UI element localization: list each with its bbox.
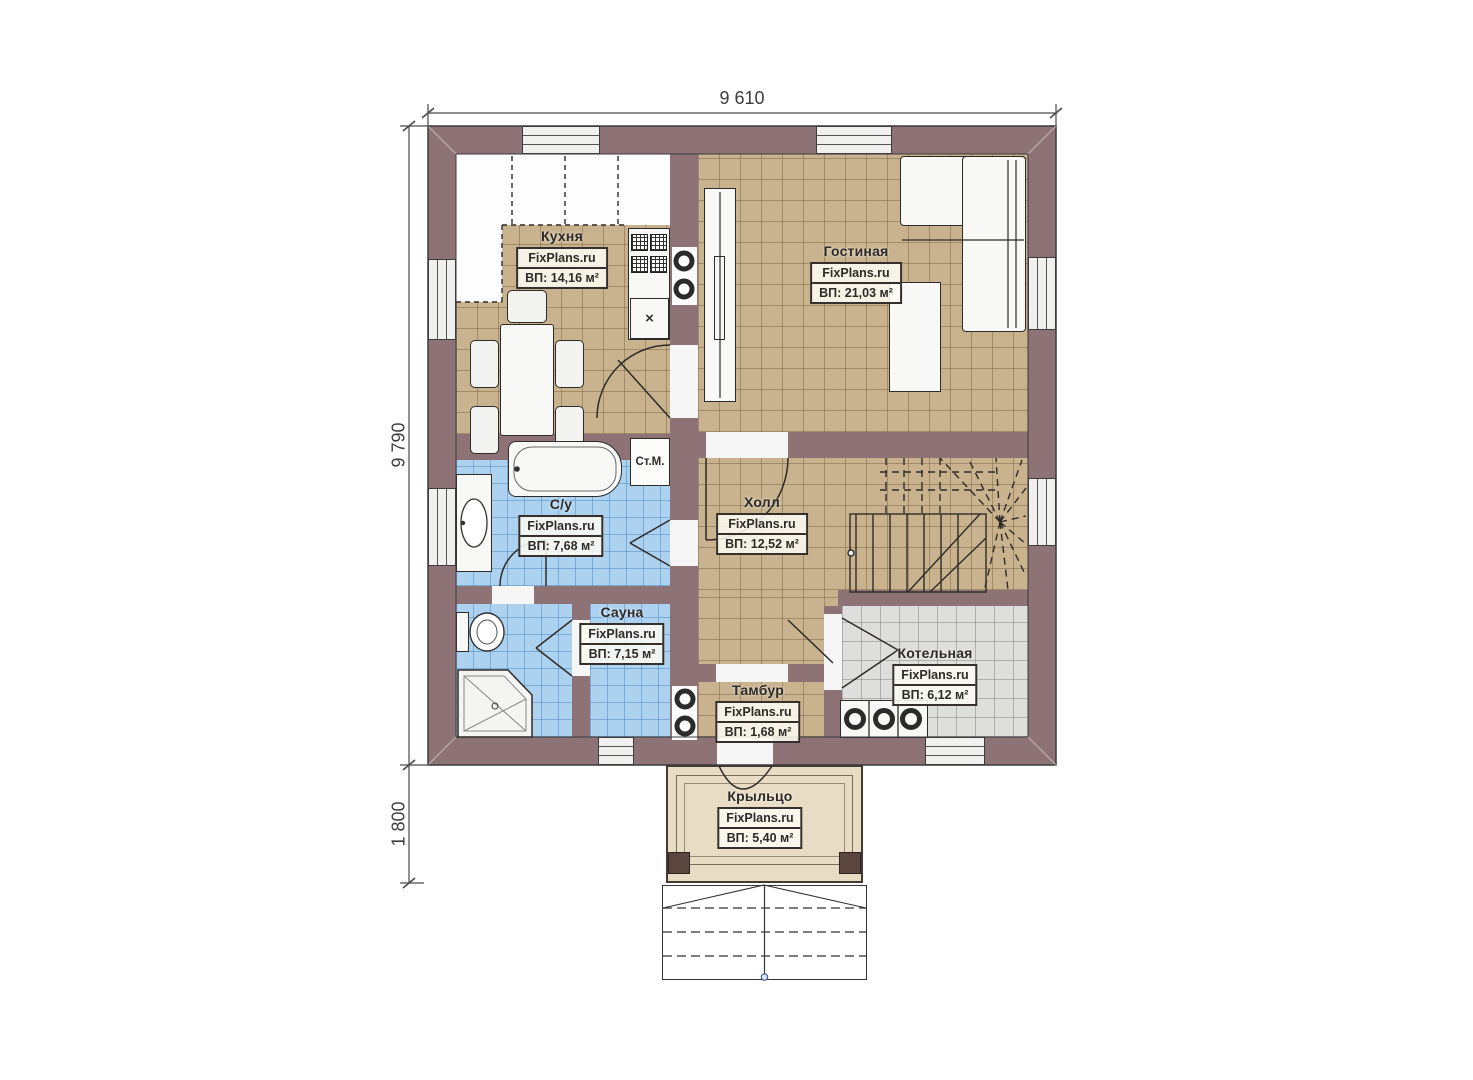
site-label: FixPlans.ru [520,517,601,535]
site-label: FixPlans.ru [581,625,662,643]
room-name: Кухня [516,228,608,244]
wall-bathroom-sauna [456,586,670,604]
site-label: FixPlans.ru [812,264,900,282]
wall-boiler-top [838,590,1028,606]
kitchen-upper-cabinets [456,154,670,225]
site-label: FixPlans.ru [894,666,975,684]
stove-burner-icon [631,234,648,251]
area-box: FixPlans.ru ВП: 21,03 м² [810,262,902,304]
area-value: ВП: 14,16 м² [518,267,606,287]
window-bottom-sauna [598,737,634,765]
room-name: С/у [518,496,603,512]
chair [555,340,584,388]
area-value: ВП: 7,15 м² [581,643,662,663]
dimension-porch-label: 1 800 [389,801,410,846]
porch-post [839,852,861,874]
sink-mark: × [630,298,669,339]
window-bottom-boiler [925,737,985,765]
area-box: FixPlans.ru ВП: 5,40 м² [717,807,802,849]
area-box: FixPlans.ru ВП: 7,68 м² [518,515,603,557]
floor-plan-scene: × Ст.М. [0,0,1473,1080]
wall-exterior-right [1028,126,1056,765]
vanity-sink-cabinet [456,474,492,572]
stove-burner-icon [650,256,667,273]
door-opening-kitchen [670,345,698,418]
washing-machine: Ст.М. [630,438,670,486]
window-right-hall [1028,478,1056,546]
stove-burner-icon [631,256,648,273]
chimney-block-kitchen [672,247,697,305]
area-value: ВП: 21,03 м² [812,282,900,302]
chair [507,290,547,323]
room-label-living: Гостиная FixPlans.ru ВП: 21,03 м² [810,243,902,304]
chair [470,340,499,388]
door-opening-living-hall [706,432,788,458]
room-label-kitchen: Кухня FixPlans.ru ВП: 14,16 м² [516,228,608,289]
area-box: FixPlans.ru ВП: 7,15 м² [579,623,664,665]
site-label: FixPlans.ru [518,249,606,267]
area-value: ВП: 1,68 м² [717,721,798,741]
sofa-vertical-section [962,156,1026,332]
wall-exterior-left [428,126,456,765]
room-label-tambur: Тамбур FixPlans.ru ВП: 1,68 м² [715,682,800,743]
area-value: ВП: 5,40 м² [719,827,800,847]
room-name: Крыльцо [717,788,802,804]
window-left-kitchen [428,259,456,340]
room-label-sauna: Сауна FixPlans.ru ВП: 7,15 м² [579,604,664,665]
room-label-porch: Крыльцо FixPlans.ru ВП: 5,40 м² [717,788,802,849]
toilet-tank [456,612,469,652]
room-label-hall: Холл FixPlans.ru ВП: 12,52 м² [716,494,808,555]
tv-screen [714,256,725,340]
wall-central [670,154,698,737]
area-value: ВП: 7,68 м² [520,535,601,555]
site-label: FixPlans.ru [718,515,806,533]
chair [470,406,499,454]
window-top-kitchen [522,126,600,154]
bathtub [508,441,622,497]
chimney-block-tambur [672,686,697,740]
stove-burner-icon [650,234,667,251]
kitchen-corner-counter [456,225,502,302]
area-box: FixPlans.ru ВП: 12,52 м² [716,513,808,555]
door-opening-tambur [716,664,788,682]
dining-table [500,324,554,436]
room-label-boiler: Котельная FixPlans.ru ВП: 6,12 м² [892,645,977,706]
area-box: FixPlans.ru ВП: 6,12 м² [892,664,977,706]
site-label: FixPlans.ru [719,809,800,827]
door-opening-bathroom-hall [670,520,698,566]
room-label-bathroom: С/у FixPlans.ru ВП: 7,68 м² [518,496,603,557]
dimension-width-label: 9 610 [719,88,764,109]
room-name: Сауна [579,604,664,620]
dimension-height-label: 9 790 [389,422,410,467]
window-top-living [816,126,892,154]
door-opening-boiler [824,614,842,690]
wc-floor [456,604,572,737]
window-left-bathroom [428,488,456,566]
door-opening-bathroom-wc [492,586,534,604]
area-value: ВП: 12,52 м² [718,533,806,553]
window-right-living [1028,257,1056,330]
porch-post [668,852,690,874]
room-name: Гостиная [810,243,902,259]
area-box: FixPlans.ru ВП: 1,68 м² [715,701,800,743]
area-value: ВП: 6,12 м² [894,684,975,704]
room-name: Котельная [892,645,977,661]
room-name: Холл [716,494,808,510]
entrance-steps [662,885,867,980]
room-name: Тамбур [715,682,800,698]
washing-machine-label: Ст.М. [636,456,665,468]
area-box: FixPlans.ru ВП: 14,16 м² [516,247,608,289]
site-label: FixPlans.ru [717,703,798,721]
